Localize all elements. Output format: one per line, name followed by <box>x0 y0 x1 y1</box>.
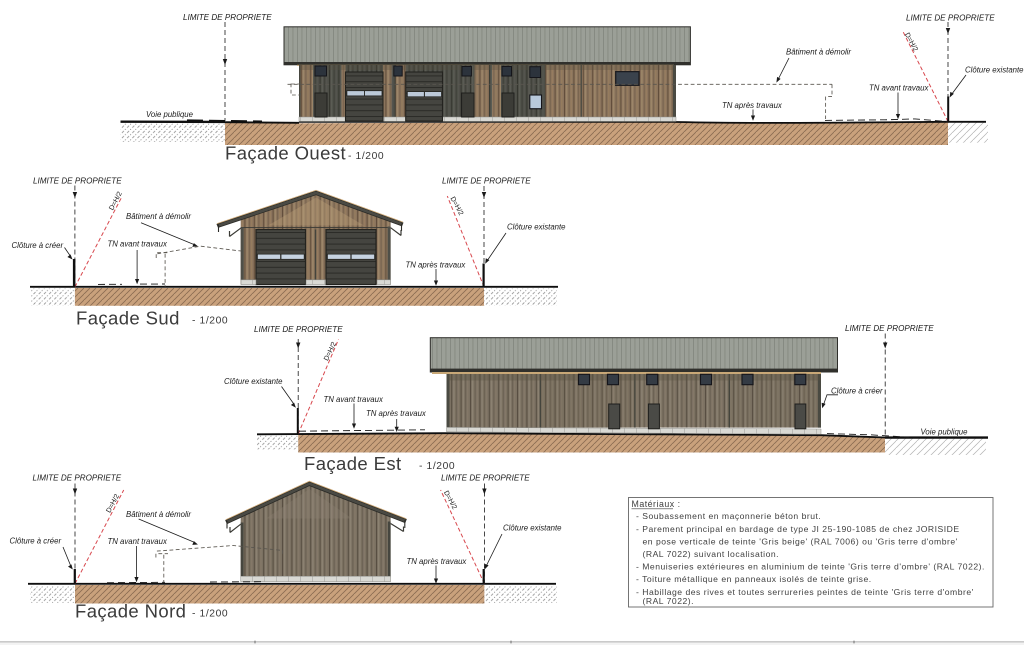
svg-text:TN avant travaux: TN avant travaux <box>869 84 929 93</box>
svg-text:- 1/200: - 1/200 <box>419 461 455 472</box>
svg-text:LIMITE DE PROPRIETE: LIMITE DE PROPRIETE <box>442 177 531 186</box>
svg-text:Voie publique: Voie publique <box>146 110 194 119</box>
svg-text:D=H/2: D=H/2 <box>323 341 338 362</box>
svg-text:LIMITE DE PROPRIETE: LIMITE DE PROPRIETE <box>33 473 122 482</box>
svg-text:- 1/200: - 1/200 <box>192 316 228 327</box>
svg-text:TN avant travaux: TN avant travaux <box>324 395 384 404</box>
svg-text:D=H/2: D=H/2 <box>449 196 465 217</box>
svg-text:Façade Ouest: Façade Ouest <box>225 142 346 163</box>
svg-text:- Parement principal en bardag: - Parement principal en bardage de type … <box>636 524 960 534</box>
svg-text:D=H/2: D=H/2 <box>903 32 919 53</box>
svg-text:- Menuiseries extérieures en a: - Menuiseries extérieures en aluminium d… <box>636 562 985 572</box>
svg-text:Matériaux :: Matériaux : <box>632 499 681 509</box>
svg-text:TN après travaux: TN après travaux <box>406 261 467 270</box>
svg-text:Clôture à créer: Clôture à créer <box>831 387 883 396</box>
svg-text:- 1/200: - 1/200 <box>192 609 228 620</box>
svg-text:Bâtiment à démolir: Bâtiment à démolir <box>126 212 191 221</box>
svg-text:TN après travaux: TN après travaux <box>366 409 427 418</box>
svg-text:Clôture à créer: Clôture à créer <box>12 241 64 250</box>
svg-text:Clôture existante: Clôture existante <box>503 524 562 533</box>
svg-text:Façade Sud: Façade Sud <box>76 308 180 329</box>
svg-text:TN après travaux: TN après travaux <box>407 557 468 566</box>
svg-text:LIMITE DE PROPRIETE: LIMITE DE PROPRIETE <box>254 325 343 334</box>
svg-text:LIMITE DE PROPRIETE: LIMITE DE PROPRIETE <box>441 473 530 482</box>
svg-text:Clôture existante: Clôture existante <box>507 223 566 232</box>
svg-text:LIMITE DE PROPRIETE: LIMITE DE PROPRIETE <box>183 13 272 22</box>
svg-text:en pose verticale de teinte 'G: en pose verticale de teinte 'Gris beige'… <box>643 536 958 546</box>
svg-text:Façade Est: Façade Est <box>304 453 402 474</box>
svg-text:Clôture à créer: Clôture à créer <box>10 537 62 546</box>
svg-text:- Soubassement en maçonnerie b: - Soubassement en maçonnerie béton brut. <box>636 511 821 521</box>
svg-text:(RAL 7022) suivant localisatio: (RAL 7022) suivant localisation. <box>643 549 780 559</box>
svg-text:Bâtiment à démolir: Bâtiment à démolir <box>126 510 191 519</box>
svg-text:TN après travaux: TN après travaux <box>722 101 783 110</box>
svg-text:Voie publique: Voie publique <box>921 427 969 436</box>
svg-text:Clôture existante: Clôture existante <box>224 377 283 386</box>
svg-text:LIMITE DE PROPRIETE: LIMITE DE PROPRIETE <box>33 177 122 186</box>
svg-text:D=H/2: D=H/2 <box>442 490 458 511</box>
svg-text:D=H/2: D=H/2 <box>108 191 124 212</box>
svg-text:(RAL 7022).: (RAL 7022). <box>643 596 695 606</box>
svg-text:D=H/2: D=H/2 <box>105 493 121 514</box>
svg-text:LIMITE DE PROPRIETE: LIMITE DE PROPRIETE <box>845 324 934 333</box>
svg-text:TN avant travaux: TN avant travaux <box>108 240 168 249</box>
svg-text:- Toiture métallique en pannea: - Toiture métallique en panneaux isolés … <box>636 574 872 584</box>
svg-text:TN avant travaux: TN avant travaux <box>108 537 168 546</box>
svg-text:Clôture existante: Clôture existante <box>965 65 1024 74</box>
svg-text:Bâtiment à démolir: Bâtiment à démolir <box>786 48 851 57</box>
svg-text:- 1/200: - 1/200 <box>348 151 384 162</box>
svg-text:LIMITE DE PROPRIETE: LIMITE DE PROPRIETE <box>906 13 995 22</box>
svg-text:Façade Nord: Façade Nord <box>75 601 186 622</box>
